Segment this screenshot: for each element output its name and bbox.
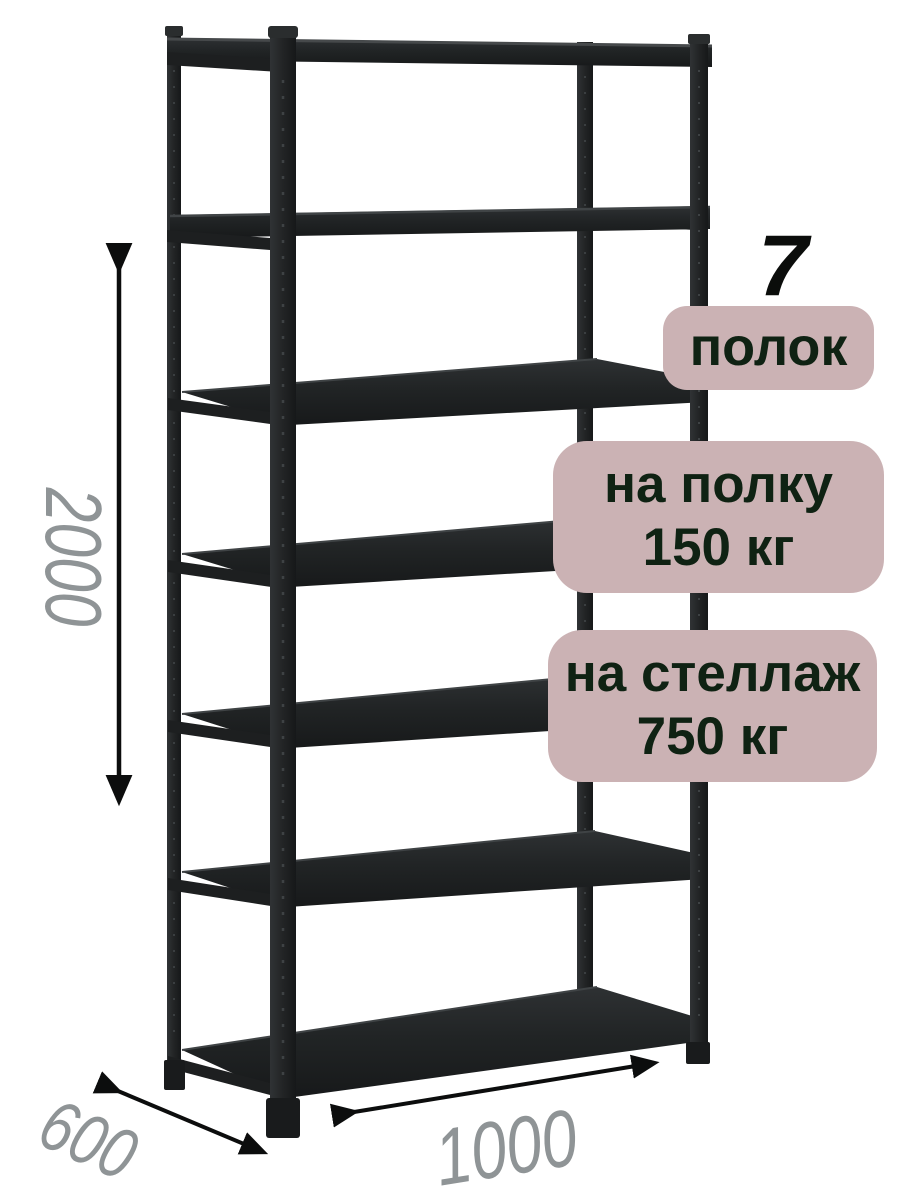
shelf-count-number: 7 [758, 223, 808, 309]
per-rack-load-line1: на стеллаж [565, 643, 861, 706]
shelf-count-badge: полок [663, 306, 874, 390]
foot-front-right [686, 1042, 710, 1064]
foot-front-left [266, 1098, 300, 1138]
per-rack-load-badge: на стеллаж 750 кг [548, 630, 877, 782]
shelf-count-unit-label: полок [690, 316, 848, 380]
width-dimension-label: 1000 [429, 1097, 582, 1198]
foot-back-left [164, 1060, 185, 1090]
height-dimension-label: 2000 [33, 488, 113, 627]
per-shelf-load-line2: 150 кг [643, 517, 795, 580]
product-image: 2000 1000 600 7 полок на полку 150 кг на… [0, 0, 900, 1200]
shelving-rack-illustration [0, 0, 900, 1200]
per-shelf-load-line1: на полку [604, 454, 833, 517]
per-rack-load-line2: 750 кг [637, 706, 789, 769]
front-left-post [270, 30, 296, 1100]
per-shelf-load-badge: на полку 150 кг [553, 441, 884, 593]
